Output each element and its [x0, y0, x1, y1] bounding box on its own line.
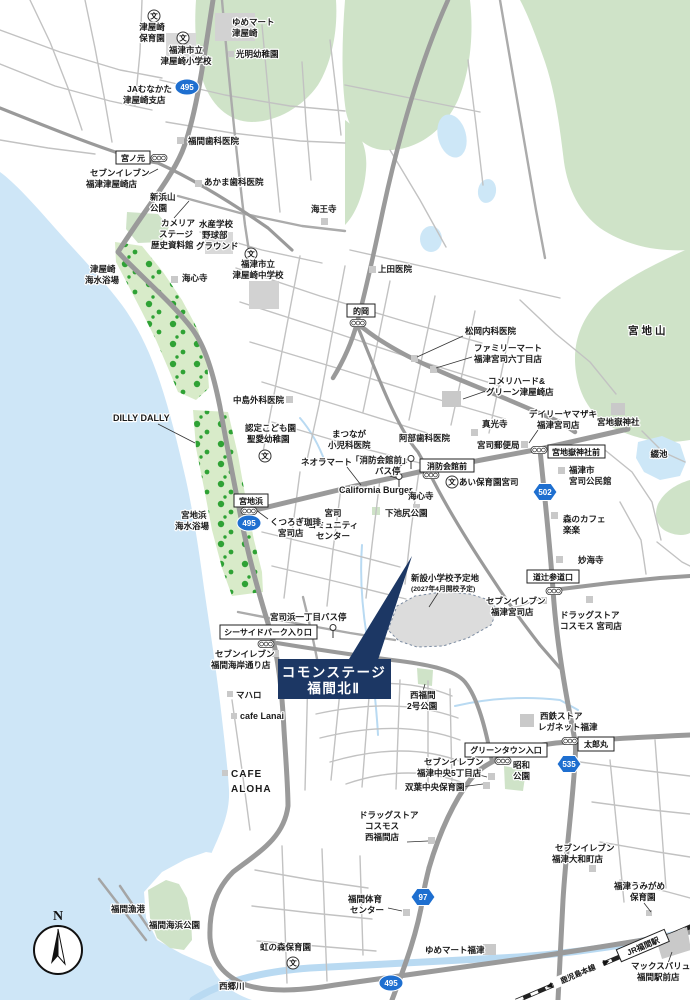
building	[488, 773, 495, 780]
label-yumemart-tsuyazaki: 津屋崎	[232, 28, 258, 38]
building	[321, 218, 328, 225]
label-familymart-miyaji: 福津宮司六丁目店	[473, 354, 543, 364]
building	[611, 403, 625, 415]
label-nijinomori-hoikuen: 虹の森保育園	[260, 942, 311, 952]
intersection-shobokaikanmae: 消防会館前	[420, 459, 474, 472]
label-miyajihama-1chome-busstop: 宮司浜一丁目バス停	[270, 612, 347, 622]
building	[411, 355, 418, 362]
svg-text:的岡: 的岡	[353, 306, 369, 316]
label-fukuma-dental: 福間歯科医院	[187, 136, 240, 146]
label-fukuma-gym: センター	[350, 905, 384, 915]
building	[249, 281, 279, 309]
label-tsuyazaki-beach: 津屋崎	[90, 264, 116, 274]
school-site-polygon	[388, 592, 497, 647]
label-matsunaga-pediatrics: 小児科医院	[327, 440, 371, 450]
label-tsuyazaki-es: 福津市立	[168, 45, 204, 55]
svg-text:宮地嶽神社前: 宮地嶽神社前	[552, 447, 600, 457]
intersection-miyajihama: 宮地浜	[234, 494, 268, 507]
label-seiai-kindergarten: 認定こども園	[245, 423, 296, 433]
building	[403, 909, 410, 916]
traffic-signal-icon	[241, 507, 257, 514]
label-yumemart-fukutsu: ゆめマート福津	[425, 945, 485, 955]
building	[231, 713, 237, 719]
pond	[476, 178, 498, 205]
label-showa-park: 昭和	[513, 760, 530, 770]
label-tsuyazaki-hoikuen: 保育園	[138, 33, 165, 43]
label-ueda-clinic: 上田医院	[378, 264, 413, 274]
label-komyo-yochien: 光明幼稚園	[235, 49, 279, 59]
svg-text:消防会館前: 消防会館前	[427, 461, 467, 471]
label-suisan-ground: 水産学校	[198, 219, 234, 229]
label-miyaji-kominkan: 福津市	[568, 465, 595, 475]
label-daily-yamazaki: 福津宮司店	[536, 420, 580, 430]
label-miyaji-community: 宮司	[324, 508, 341, 518]
label-abe-dental: 阿部歯科医院	[399, 433, 451, 443]
label-camellia-stage: 歴史資料館	[151, 240, 194, 250]
school-icon	[177, 32, 189, 44]
intersection-greentown: グリーンタウン入口	[465, 743, 547, 757]
label-nishifukuma2-park: 2号公園	[407, 701, 437, 711]
label-tsuyazaki-es: 津屋崎小学校	[160, 56, 212, 66]
building	[586, 596, 593, 603]
compass-north-label: N	[53, 909, 63, 924]
label-maxvalu: 福間駅前店	[636, 972, 680, 982]
label-seveneleven-tsuyazaki: 福津津屋崎店	[85, 179, 138, 189]
label-umigame-hoikuen: 福津うみがめ	[613, 881, 665, 891]
label-seveneleven-kaigandori: 福間海岸通り店	[210, 660, 271, 670]
label-myokaiji: 妙海寺	[578, 555, 604, 565]
label-nishifukuma2-park: 西福間	[410, 690, 436, 700]
label-niihamayama-park: 新浜山	[150, 192, 176, 202]
label-fukuma-gym: 福間体育	[347, 894, 383, 904]
intersection-miyajidake-jinja-mae: 宮地嶽神社前	[548, 445, 605, 458]
building	[442, 391, 461, 407]
label-new-school-site: 新設小学校予定地	[411, 573, 480, 583]
label-yumemart-tsuyazaki: ゆめマート	[232, 17, 275, 27]
new-school-site-area	[388, 592, 497, 647]
svg-text:宮地浜: 宮地浜	[239, 496, 263, 506]
building	[286, 396, 293, 403]
svg-text:道辻参道口: 道辻参道口	[533, 572, 573, 582]
route-495-number: 495	[384, 979, 398, 988]
building	[483, 944, 496, 955]
label-shobokaikanmae-busstop: バス停	[375, 466, 401, 476]
callout-title-line1: コモンステージ	[282, 665, 386, 680]
building	[222, 770, 228, 776]
route-502-badge: 502	[533, 484, 557, 501]
label-niihamayama-park: 公園	[150, 203, 167, 213]
school-icon	[287, 957, 299, 969]
label-ja-munakata: 津屋崎支店	[123, 95, 166, 105]
label-cosmos-nishifukuma: ドラッグストア	[359, 810, 419, 820]
building	[589, 865, 596, 872]
label-seveneleven-kaigandori: セブンイレブン	[215, 649, 275, 659]
route-495-badge: 495	[379, 975, 403, 991]
building	[556, 556, 563, 563]
map-svg: 文	[0, 0, 690, 1000]
label-cafe-aloha: ALOHA	[231, 784, 272, 795]
label-matsunaga-pediatrics: まつなが	[332, 429, 367, 439]
label-kutsurogi-coffee: 宮司店	[278, 528, 304, 538]
label-umigame-hoikuen: 保育園	[629, 892, 656, 902]
school-icon	[446, 476, 458, 488]
label-seveneleven-chuo5: セブンイレブン	[424, 757, 484, 767]
label-seveneleven-miyaji: セブンイレブン	[486, 596, 546, 606]
traffic-signal-icon	[258, 640, 274, 647]
traffic-signal-icon	[562, 737, 578, 744]
label-miyajihama-beach: 海水浴場	[175, 521, 210, 531]
label-ai-hoikuen: あい保育園宮司	[459, 477, 519, 487]
label-tsuyazaki-hoikuen: 津屋崎	[139, 22, 165, 32]
building	[520, 714, 534, 727]
building	[646, 910, 652, 916]
building	[471, 429, 478, 436]
label-suisan-ground: グラウンド	[196, 241, 239, 251]
label-nishigo-river: 西郷川	[219, 981, 245, 991]
building	[227, 691, 233, 697]
svg-text:宮ノ元: 宮ノ元	[121, 153, 145, 163]
svg-text:太郎丸: 太郎丸	[583, 739, 609, 749]
water-features	[193, 111, 690, 1000]
label-fukuma-kaihin-park: 福間海浜公園	[148, 920, 200, 930]
svg-text:シーサイドパーク入り口: シーサイドパーク入り口	[224, 627, 312, 637]
label-dilly-dally: DILLY DALLY	[113, 413, 170, 423]
label-miyajidake-shrine: 宮地嶽神社	[597, 417, 640, 427]
sea-area	[0, 172, 252, 1000]
label-tsuyazaki-jhs: 福津市立	[240, 259, 276, 269]
label-kaioji: 海王寺	[311, 204, 337, 214]
label-familymart-miyaji: ファミリーマート	[474, 343, 542, 353]
label-akama-dental: あかま歯科医院	[204, 177, 264, 187]
label-mori-no-cafe: 森のカフェ	[563, 514, 606, 524]
label-miyajiyama: 宮地山	[628, 324, 669, 337]
label-kaishinji-south: 海心寺	[408, 491, 434, 501]
intersection-michitsuji-sandoguchi: 道辻参道口	[527, 570, 579, 583]
label-miyajihama-beach: 宮地浜	[181, 510, 207, 520]
traffic-signal-icon	[531, 446, 547, 453]
building	[195, 180, 202, 187]
nishifukuma2-park	[417, 668, 433, 686]
route-502-number: 502	[538, 488, 552, 497]
label-new-school-site-date: (2027年4月開校予定)	[411, 584, 475, 593]
forest	[656, 480, 690, 535]
label-seveneleven-tsuyazaki: セブンイレブン	[90, 168, 150, 178]
label-miyaji-community: センター	[316, 531, 350, 541]
label-daily-yamazaki: デイリーヤマザキ	[529, 409, 597, 419]
traffic-signal-icon	[495, 757, 511, 764]
intersection-taromaru: 太郎丸	[578, 737, 614, 751]
building	[177, 137, 184, 144]
label-seiai-kindergarten: 聖愛幼稚園	[247, 434, 290, 444]
label-seveneleven-yamatomachi: 福津大和町店	[551, 854, 604, 864]
label-suisan-ground: 野球部	[202, 230, 228, 240]
label-tsuzuri-pond: 綴池	[650, 449, 668, 459]
label-cosmos-nishifukuma: 西福間店	[365, 832, 400, 842]
route-535-badge: 535	[557, 756, 581, 773]
label-nakashima-clinic: 中島外科医院	[233, 395, 285, 405]
building	[430, 366, 437, 373]
label-shinkoji: 真光寺	[482, 419, 508, 429]
label-maxvalu: マックスバリュ	[631, 961, 690, 971]
route-495-number: 495	[180, 83, 194, 92]
building	[521, 441, 528, 448]
label-matsuoka-clinic: 松岡内科医院	[465, 326, 517, 336]
label-miyaji-kominkan: 宮司公民館	[569, 476, 612, 486]
label-california-burger: California Burger	[339, 485, 413, 495]
label-nishitetsu-store: レガネット福津	[538, 722, 598, 732]
pond	[420, 226, 442, 252]
route-97-badge: 97	[411, 889, 435, 906]
traffic-signal-icon	[151, 154, 167, 161]
route-495-badge: 495	[237, 515, 261, 531]
label-cosmos-miyaji: ドラッグストア	[560, 610, 620, 620]
label-kaishinji-north: 海心寺	[182, 273, 208, 283]
school-icon	[148, 10, 160, 22]
route-495-badge: 495	[175, 79, 199, 95]
label-cafe-aloha: CAFE	[231, 769, 262, 780]
label-neora-mart: ネオラマート	[301, 457, 352, 467]
building	[558, 467, 565, 474]
forest	[520, 0, 690, 250]
building	[369, 266, 376, 273]
label-showa-park: 公園	[513, 771, 530, 781]
label-seveneleven-miyaji: 福津宮司店	[490, 607, 534, 617]
school-icon	[259, 450, 271, 462]
label-cafe-lanai: cafe Lanai	[240, 711, 284, 721]
label-futaba-hoikuen: 双葉中央保育園	[405, 782, 465, 792]
svg-text:グリーンタウン入口: グリーンタウン入口	[470, 745, 542, 755]
label-nishitetsu-store: 西鉄ストア	[540, 711, 583, 721]
callout-title-line2: 福間北Ⅱ	[306, 680, 360, 696]
label-shobokaikanmae-busstop: 「消防会館前」	[351, 455, 411, 465]
label-kutsurogi-coffee: くつろぎ珈琲	[270, 517, 322, 527]
label-seveneleven-yamatomachi: セブンイレブン	[555, 843, 615, 853]
traffic-signal-icon	[546, 587, 562, 594]
label-cosmos-nishifukuma: コスモス	[365, 821, 399, 831]
label-mahalo: マハロ	[236, 690, 262, 700]
label-tsuyazaki-jhs: 津屋崎中学校	[232, 270, 284, 280]
label-miyaji-post-office: 宮司郵便局	[477, 440, 520, 450]
traffic-signal-icon	[350, 319, 366, 326]
label-komeri: コメリハード&	[488, 376, 545, 386]
label-camellia-stage: ステージ	[159, 229, 193, 239]
intersection-miyanomoto: 宮ノ元	[116, 151, 150, 164]
label-camellia-stage: カメリア	[161, 218, 196, 228]
intersection-matooka: 的岡	[347, 304, 375, 317]
route-535-number: 535	[562, 760, 576, 769]
label-mori-no-cafe: 楽楽	[562, 525, 581, 535]
label-cosmos-miyaji: コスモス 宮司店	[560, 621, 622, 631]
building	[171, 276, 178, 283]
label-seveneleven-chuo5: 福津中央5丁目店	[416, 768, 482, 778]
intersection-seaside-park: シーサイドパーク入り口	[220, 625, 317, 639]
label-tsuyazaki-beach: 海水浴場	[85, 275, 120, 285]
label-komeri: グリーン津屋崎店	[486, 387, 554, 397]
label-ja-munakata: JAむなかた	[127, 84, 172, 94]
route-495-number: 495	[242, 519, 256, 528]
label-fukuma-port: 福間漁港	[110, 904, 146, 914]
route-97-number: 97	[419, 893, 428, 902]
building	[483, 782, 490, 789]
kagoshima-line-label: 鹿児島本線	[544, 955, 611, 992]
building	[428, 837, 435, 844]
location-map: 文	[0, 0, 690, 1000]
building	[551, 512, 558, 519]
building	[228, 51, 234, 57]
label-shimoikejiri-park: 下池尻公園	[385, 508, 428, 518]
